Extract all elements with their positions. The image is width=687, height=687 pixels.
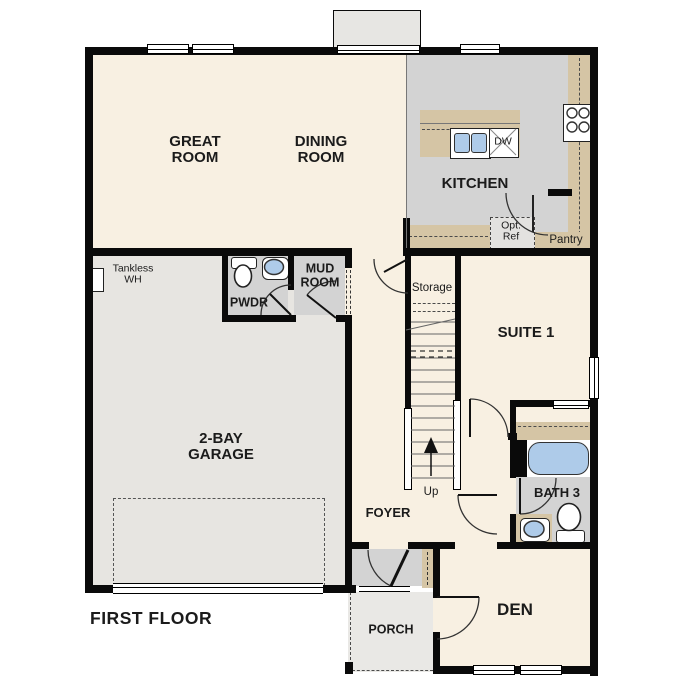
- stove: [563, 104, 593, 142]
- bath3-label: BATH 3: [512, 486, 602, 500]
- powder-toilet-tank: [231, 257, 257, 269]
- suite1-label: SUITE 1: [471, 325, 581, 341]
- garage-label: 2-BAY GARAGE: [171, 431, 271, 463]
- stair-rail-right: [453, 400, 461, 490]
- up-label: Up: [416, 486, 446, 498]
- bath3-sink-basin: [520, 518, 550, 542]
- porch-corner-stub: [345, 662, 353, 674]
- wall-left: [85, 47, 93, 592]
- wall-main-horizontal-right: [403, 248, 597, 256]
- wall-den-west-upper: [433, 549, 440, 598]
- counter-dash-right: [579, 58, 580, 244]
- wall-main-horizontal-left: [93, 248, 352, 256]
- wall-mud-bottom-post: [288, 315, 296, 322]
- closet-dash: [518, 426, 588, 427]
- window-suite1: [589, 357, 599, 399]
- pantry-label: Pantry: [541, 234, 591, 246]
- wall-stairs-left: [405, 256, 411, 408]
- dw-label: DW: [490, 136, 516, 147]
- counter-dash-bottom: [409, 236, 488, 237]
- powder-label: PWDR: [214, 296, 284, 310]
- storage-dash-1: [413, 303, 455, 304]
- wall-stairs-right: [455, 256, 461, 400]
- window-greatroom-1: [147, 44, 189, 54]
- kitchen-dining-divider: [406, 55, 407, 248]
- wall-foyer-bottom-b: [408, 542, 441, 549]
- porch-label: PORCH: [351, 623, 431, 637]
- wall-pantry-top: [548, 189, 572, 196]
- kitchen-label: KITCHEN: [415, 176, 535, 192]
- storage-dash-2: [413, 311, 455, 312]
- mud-room-label: MUD ROOM: [289, 263, 351, 290]
- garage-door-line: [113, 587, 323, 588]
- foyer-label: FOYER: [348, 506, 428, 520]
- sink-basin-right: [471, 133, 487, 153]
- porch-edge-bottom: [352, 670, 433, 671]
- stair-rail-left: [404, 408, 412, 490]
- wall-powder-left: [222, 256, 228, 322]
- suite-closet-shelf: [516, 422, 590, 440]
- tankless-wh-label: Tankless WH: [103, 264, 163, 287]
- wall-den-bottom: [433, 666, 598, 674]
- entry-vestibule-floor: [352, 549, 422, 586]
- entry-closet-dash: [427, 552, 428, 585]
- dining-room-label: DINING ROOM: [275, 134, 367, 166]
- great-room-label: GREAT ROOM: [149, 134, 241, 166]
- floor-plan: GREAT ROOM DINING ROOM KITCHEN 2-BAY GAR…: [0, 0, 687, 687]
- wall-tub-stub: [516, 440, 527, 477]
- window-den-1: [473, 665, 515, 675]
- wall-garage-bottom-left: [85, 585, 113, 593]
- wall-closet-top: [510, 400, 553, 407]
- wall-garage-east: [345, 315, 352, 592]
- island-counter-edge: [420, 123, 520, 124]
- storage-label: Storage: [402, 282, 462, 294]
- garage-door: [113, 583, 323, 594]
- sink-basin-left: [454, 133, 470, 153]
- wall-foyer-bottom-stub: [497, 542, 516, 549]
- fireplace-bumpout: [333, 10, 421, 50]
- window-bumpout: [337, 45, 420, 54]
- den-label: DEN: [475, 601, 555, 619]
- window-kitchen: [460, 44, 500, 54]
- wall-foyer-bottom-c: [441, 542, 455, 549]
- closet-sliding-door: [553, 400, 589, 409]
- powder-sink-counter: [262, 257, 289, 280]
- wall-bath-bottom: [516, 542, 597, 549]
- garage-door-zone: [113, 498, 325, 586]
- bathtub: [528, 442, 589, 475]
- wall-foyer-bottom-a: [352, 542, 369, 549]
- wall-den-west-lower: [433, 632, 440, 674]
- window-den-2: [520, 665, 562, 675]
- pantry-thin-wall: [532, 195, 534, 232]
- front-door-threshold: [359, 586, 410, 592]
- wall-powder-bottom: [222, 315, 288, 322]
- first-floor-title: FIRST FLOOR: [90, 608, 212, 629]
- opt-ref-label: Opt. Ref: [495, 221, 527, 244]
- window-greatroom-2: [192, 44, 234, 54]
